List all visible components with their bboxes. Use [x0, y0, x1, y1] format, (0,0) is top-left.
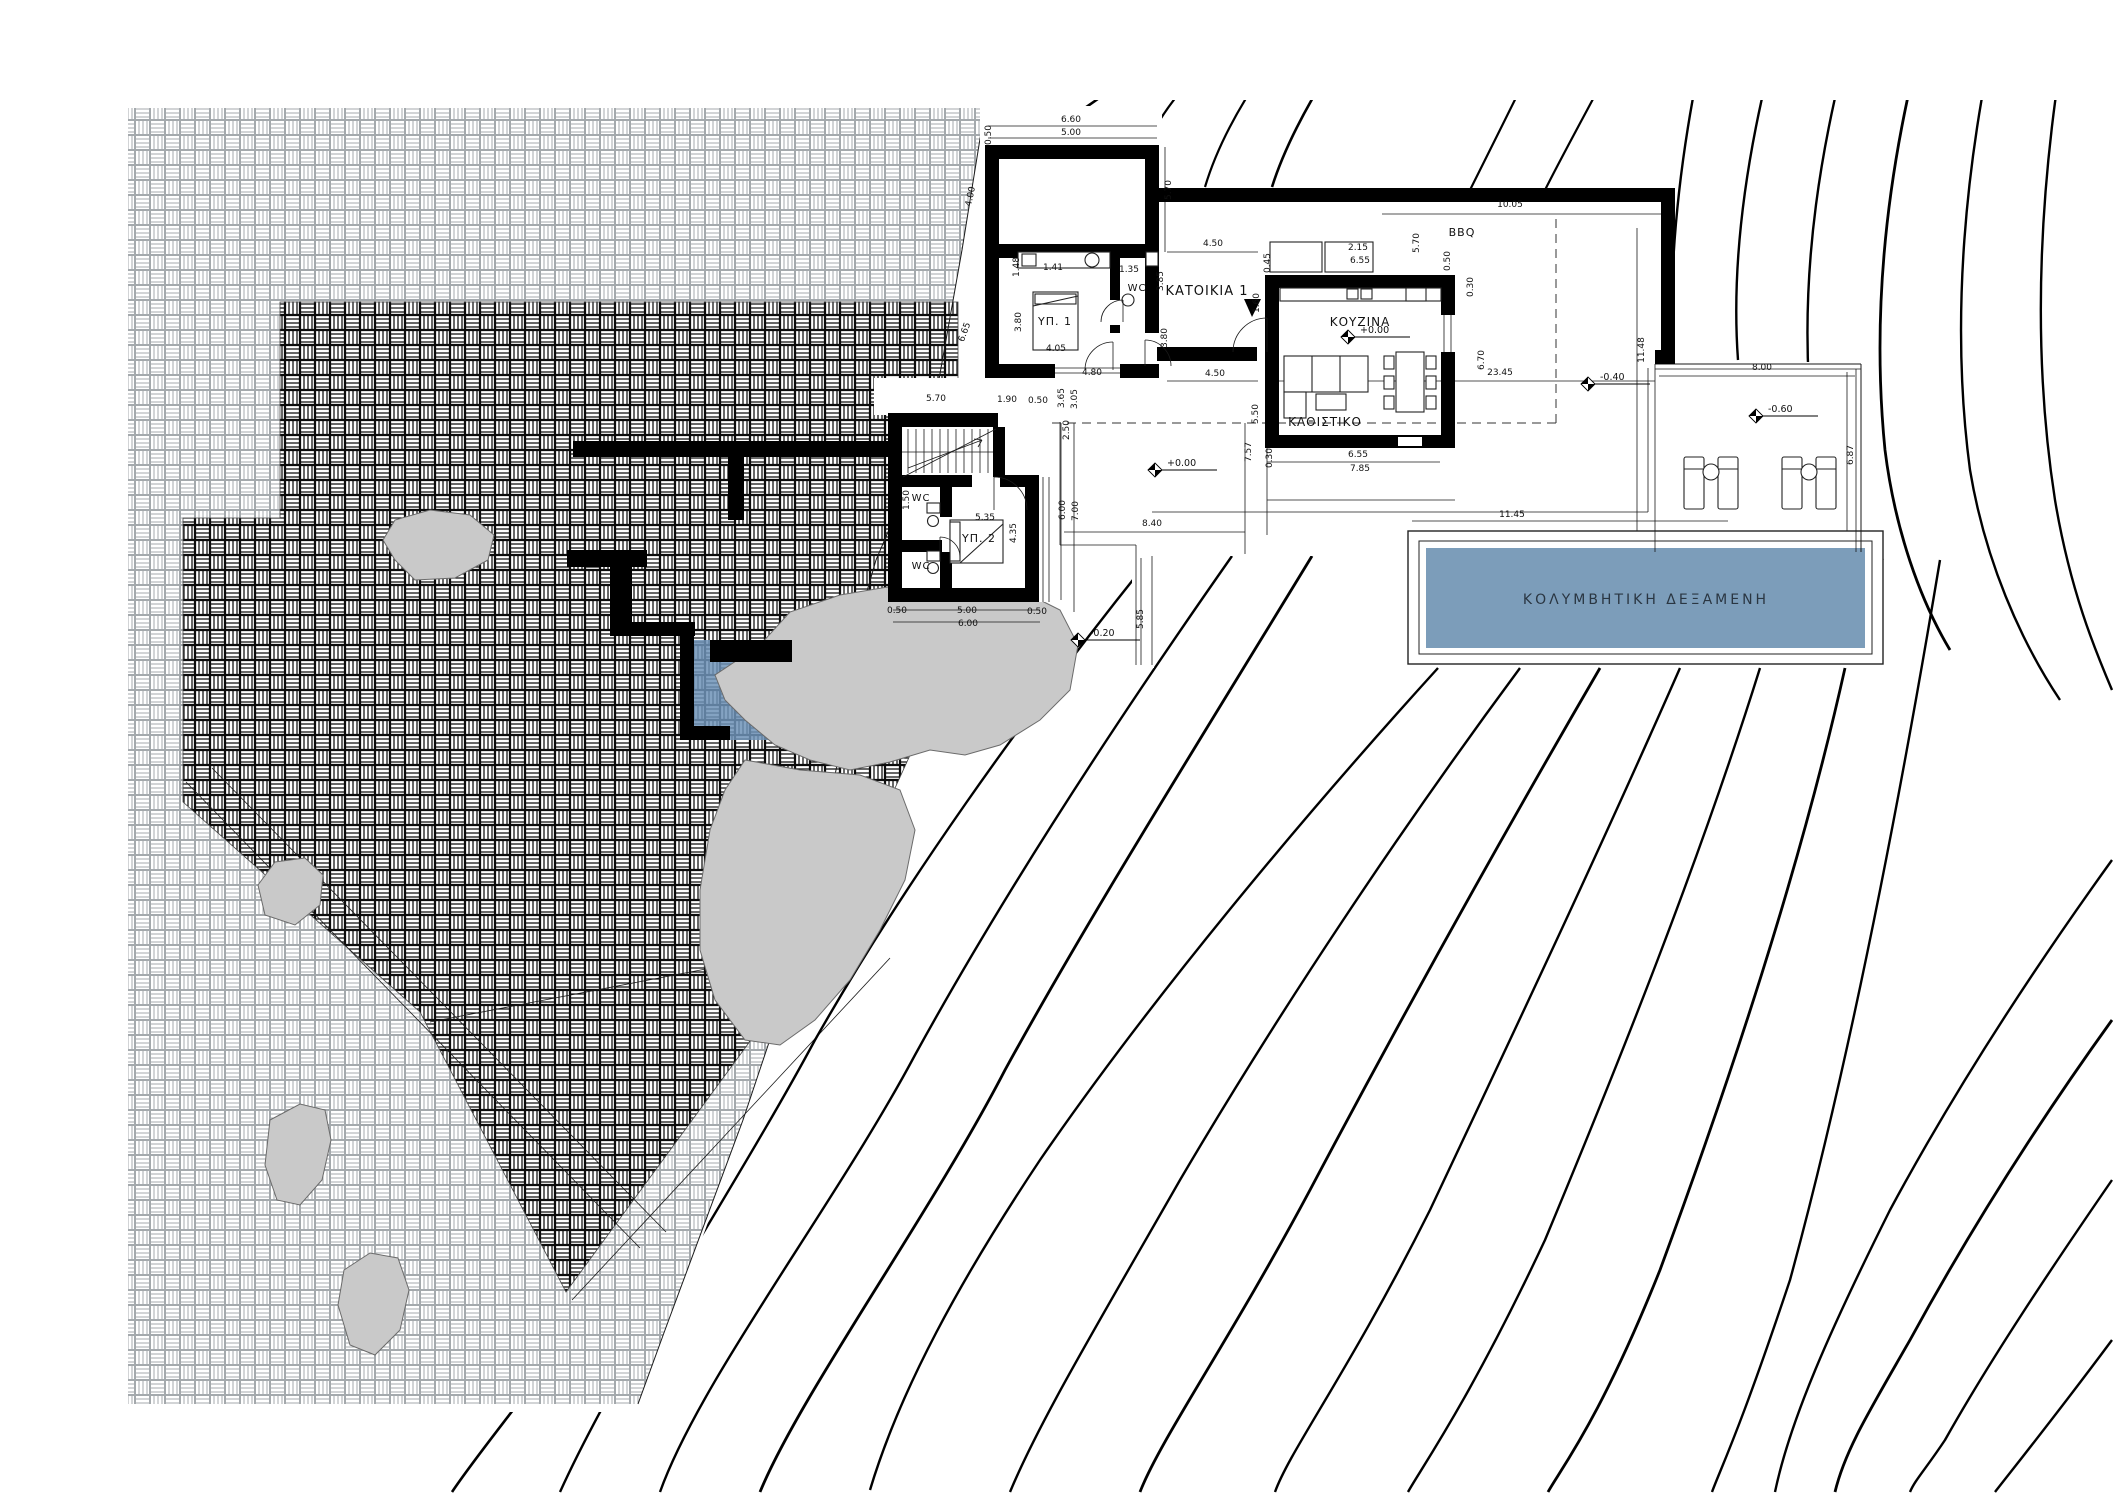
dimension-label: 0.50 [984, 125, 994, 145]
svg-text:-0.20: -0.20 [1090, 628, 1115, 639]
dimension-label: 1.35 [1119, 265, 1139, 275]
dimension-label: 1.60 [1252, 293, 1262, 313]
dimension-label: 5.70 [926, 394, 946, 404]
dimension-label: 5.50 [1251, 404, 1261, 424]
dimension-label: 1.90 [997, 395, 1017, 405]
dimension-label: 3.65 [1057, 388, 1067, 408]
dimension-label: 5.00 [957, 606, 977, 616]
dimension-label: 11.48 [1637, 337, 1647, 363]
dimension-label: 8.00 [1752, 363, 1772, 373]
dimension-label: 6.87 [1846, 445, 1856, 465]
dimension-label: 2.15 [1348, 243, 1368, 253]
dimension-label: 5.85 [1136, 609, 1146, 629]
side-table [1801, 464, 1817, 480]
dimension-label: 3.05 [1070, 389, 1080, 409]
room-label-bbq: BBQ [1449, 226, 1476, 239]
dimension-label: 6.60 [1061, 115, 1081, 125]
dimension-label: 5.70 [1412, 233, 1422, 253]
dimension-label: 4.50 [1203, 239, 1223, 249]
sofa [1284, 356, 1368, 392]
dimension-label: 6.55 [1350, 256, 1370, 266]
room-label-wc-a: WC [1128, 283, 1147, 294]
svg-text:+0.00: +0.00 [1360, 325, 1389, 336]
rock [700, 760, 915, 1045]
dimension-label: 6.00 [1058, 500, 1068, 520]
svg-text:-0.60: -0.60 [1768, 404, 1793, 415]
level-marker: -0.20 [1071, 628, 1140, 647]
dimension-label: 4.35 [1009, 523, 1019, 543]
dimension-label: 4.80 [1082, 368, 1102, 378]
dimension-label: 6.70 [1477, 350, 1487, 370]
dimension-label: 0.50 [1028, 396, 1048, 406]
dimension-label: 0.30 [1466, 277, 1476, 297]
dimension-label: 1.50 [902, 490, 912, 510]
room-label-bedroom-1: ΥΠ. 1 [1037, 315, 1072, 328]
dimension-label: 4.05 [1046, 344, 1066, 354]
room-label-living: ΚΑΘΙΣΤΙΚΟ [1288, 415, 1362, 429]
dimension-label: 0.50 [1443, 251, 1453, 271]
dimension-label: 2.50 [1062, 420, 1072, 440]
room-label-wc-b: WC [912, 493, 931, 504]
dimension-label: 1.41 [1043, 263, 1063, 273]
swimming-pool: ΚΟΛΥΜΒΗΤΙΚΗ ΔΕΞΑΜΕΝΗ [1408, 531, 1883, 664]
dimension-label: 6.65 [957, 321, 973, 343]
floor-plan-canvas: ΚΟΛΥΜΒΗΤΙΚΗ ΔΕΞΑΜΕΝΗ [0, 0, 2117, 1497]
dimension-label: 7.00 [1071, 501, 1081, 521]
dimension-label: 4.50 [1205, 369, 1225, 379]
dimension-label: 3.80 [1160, 328, 1170, 348]
dimension-label: 5.35 [975, 513, 995, 523]
pool-label: ΚΟΛΥΜΒΗΤΙΚΗ ΔΕΞΑΜΕΝΗ [1523, 592, 1769, 608]
room-label-wc-c: WC [912, 561, 931, 572]
dimension-label: 5.00 [1061, 128, 1081, 138]
dimension-label: 10.05 [1497, 200, 1523, 210]
dimension-label: 23.45 [1487, 368, 1513, 378]
dimension-label: 0.45 [1263, 253, 1273, 273]
dimension-label: 0.50 [1027, 607, 1047, 617]
dimension-label: 5.70 [1164, 180, 1174, 200]
dimension-label: 6.55 [1348, 450, 1368, 460]
dimension-label: 7.57 [1244, 442, 1254, 462]
dimension-label: 0.50 [887, 606, 907, 616]
room-label-residence-1: ΚΑΤΟΙΚΙΑ 1 [1165, 284, 1248, 299]
dimension-label: 3.85 [1156, 271, 1166, 291]
dimension-label: 11.45 [1499, 510, 1525, 520]
dimension-label: 1.48 [1012, 257, 1022, 277]
svg-text:-0.40: -0.40 [1600, 372, 1625, 383]
dimension-label: 3.80 [1014, 312, 1024, 332]
dimension-label: 8.40 [1142, 519, 1162, 529]
svg-text:+0.00: +0.00 [1167, 458, 1196, 469]
room-label-bedroom-2: ΥΠ. 2 [961, 532, 996, 545]
dimension-label: 7.85 [1350, 464, 1370, 474]
dimension-label: 0.30 [1265, 448, 1275, 468]
coffee-table [1316, 394, 1346, 410]
side-table [1703, 464, 1719, 480]
dimension-label: 6.00 [958, 619, 978, 629]
dining-table [1396, 352, 1424, 412]
